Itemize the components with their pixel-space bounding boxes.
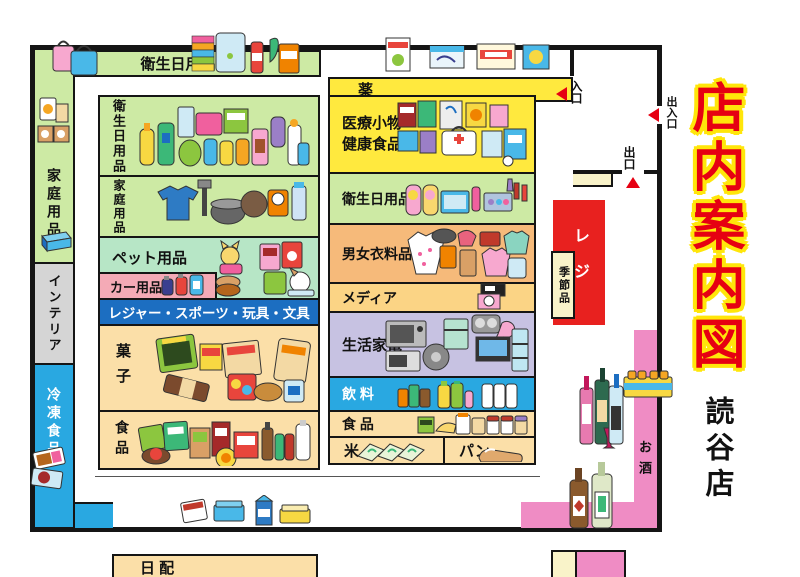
section-media-label: メディア xyxy=(330,288,397,308)
seasonal-bottom-labelcell: 季節品 xyxy=(553,552,577,577)
entrance-label: 入口 xyxy=(570,80,582,104)
canned-goods-illustration xyxy=(36,96,74,163)
section-food-right-label: 食 品 xyxy=(330,414,374,434)
seasonal-top-label: 季節品 xyxy=(558,266,569,305)
food-jars-illustration xyxy=(416,413,528,440)
store-name: 読谷店 xyxy=(702,396,731,504)
strip-daily: 日 配 xyxy=(112,554,318,577)
dairy-items-illustration xyxy=(178,495,313,534)
seasonal-top-arm xyxy=(573,174,613,187)
entrance-exit-arrow-icon xyxy=(648,108,659,122)
aisle-line xyxy=(95,476,540,477)
rice-bags-illustration xyxy=(356,440,428,467)
entrance-arrow-icon xyxy=(556,87,567,101)
strip-frozen-corner xyxy=(75,502,113,528)
vestibule-wall-a xyxy=(570,48,574,76)
exit-label: 出口 xyxy=(623,146,635,170)
alcohol-label: お酒 xyxy=(638,440,651,482)
cosmetic-items-illustration xyxy=(404,177,529,224)
shopping-bags-illustration xyxy=(50,34,102,85)
car-sprays-illustration xyxy=(160,273,212,302)
seasonal-bottom-pink xyxy=(577,552,624,577)
medicine-boxes-illustration xyxy=(385,36,550,79)
section-medical-line1: 医療小物 xyxy=(342,114,402,134)
vestibule-wall-b xyxy=(573,170,622,174)
section-pet-label: ペット用品 xyxy=(100,238,187,268)
media-tape-illustration xyxy=(477,283,507,315)
household-items-illustration xyxy=(150,178,315,238)
section-medical-line2: 健康食品 xyxy=(342,135,402,155)
blue-box-illustration xyxy=(38,228,74,259)
store-map-canvas: 衛生日用品 薬 家庭用品 インテリア 冷凍食品 日 配 アイス 飲 料 お酒 衛… xyxy=(0,0,800,577)
daily-goods-cans-illustration xyxy=(248,34,302,83)
strip-left-interior-label: インテリア xyxy=(48,274,61,354)
section-hygiene-left-label: 衛生日用品 xyxy=(112,99,125,174)
food-items-illustration xyxy=(134,418,314,471)
section-sweets-label: 菓子 xyxy=(115,343,130,393)
snack-items-illustration xyxy=(150,332,312,412)
wine-bottles-illustration xyxy=(578,356,624,461)
strip-left-interior: インテリア xyxy=(35,264,73,365)
appliance-items-illustration xyxy=(384,313,529,380)
section-hygiene-right-label: 衛生日用品 xyxy=(330,189,412,209)
seasonal-bottom-box: 季節品 xyxy=(551,550,626,577)
clothing-items-illustration xyxy=(396,226,531,287)
drink-bottles-illustration xyxy=(396,381,521,414)
exit-arrow-icon xyxy=(626,177,640,188)
bread-loaf-illustration xyxy=(477,440,525,467)
section-rice-label: 米 xyxy=(330,440,359,461)
sake-bottles-illustration xyxy=(566,460,618,537)
frozen-packs-illustration xyxy=(28,446,72,495)
medical-items-illustration xyxy=(396,99,531,172)
section-household-left-label: 家庭用品 xyxy=(113,179,125,235)
entrance-exit-label: 出入口 xyxy=(665,96,676,129)
pet-items-illustration xyxy=(212,240,317,303)
beer-case-illustration xyxy=(622,369,674,404)
alcohol-area-vertical xyxy=(634,330,657,527)
section-food-left-label: 食品 xyxy=(115,420,129,460)
section-car-label: カー用品 xyxy=(100,277,162,296)
strip-daily-label: 日 配 xyxy=(114,557,174,577)
tissue-pack-illustration xyxy=(190,28,248,81)
page-title: 店内案内図 xyxy=(688,80,741,375)
hygiene-products-illustration xyxy=(138,99,313,176)
section-drinks-right-label: 飲 料 xyxy=(330,384,374,404)
section-leisure-label: レジャー・スポーツ・玩具・文具 xyxy=(108,302,310,322)
vestibule-wall-c xyxy=(644,170,662,174)
seasonal-top-box: 季節品 xyxy=(551,251,575,319)
section-medical-label: 医療小物 健康食品 xyxy=(330,114,402,155)
